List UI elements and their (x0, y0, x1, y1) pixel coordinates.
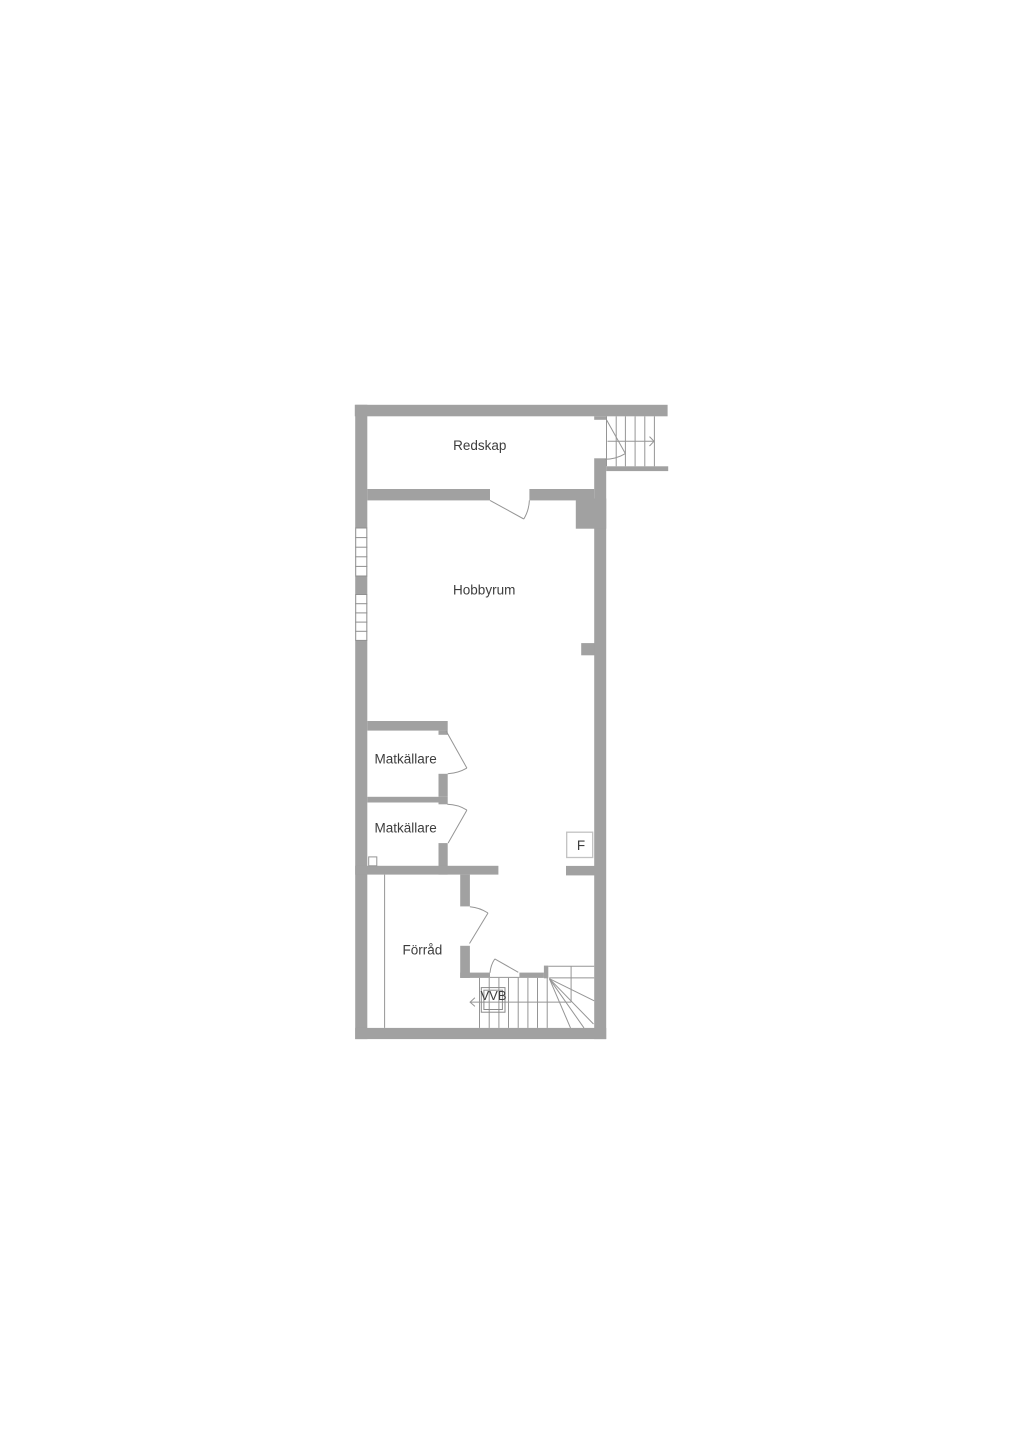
svg-text:Förråd: Förråd (403, 942, 443, 957)
svg-text:Matkällare: Matkällare (374, 752, 436, 767)
svg-text:VVB: VVB (480, 988, 506, 1003)
svg-text:Matkällare: Matkällare (374, 821, 436, 836)
svg-text:Hobbyrum: Hobbyrum (453, 583, 515, 598)
svg-text:F: F (577, 838, 585, 853)
svg-text:Redskap: Redskap (453, 438, 506, 453)
